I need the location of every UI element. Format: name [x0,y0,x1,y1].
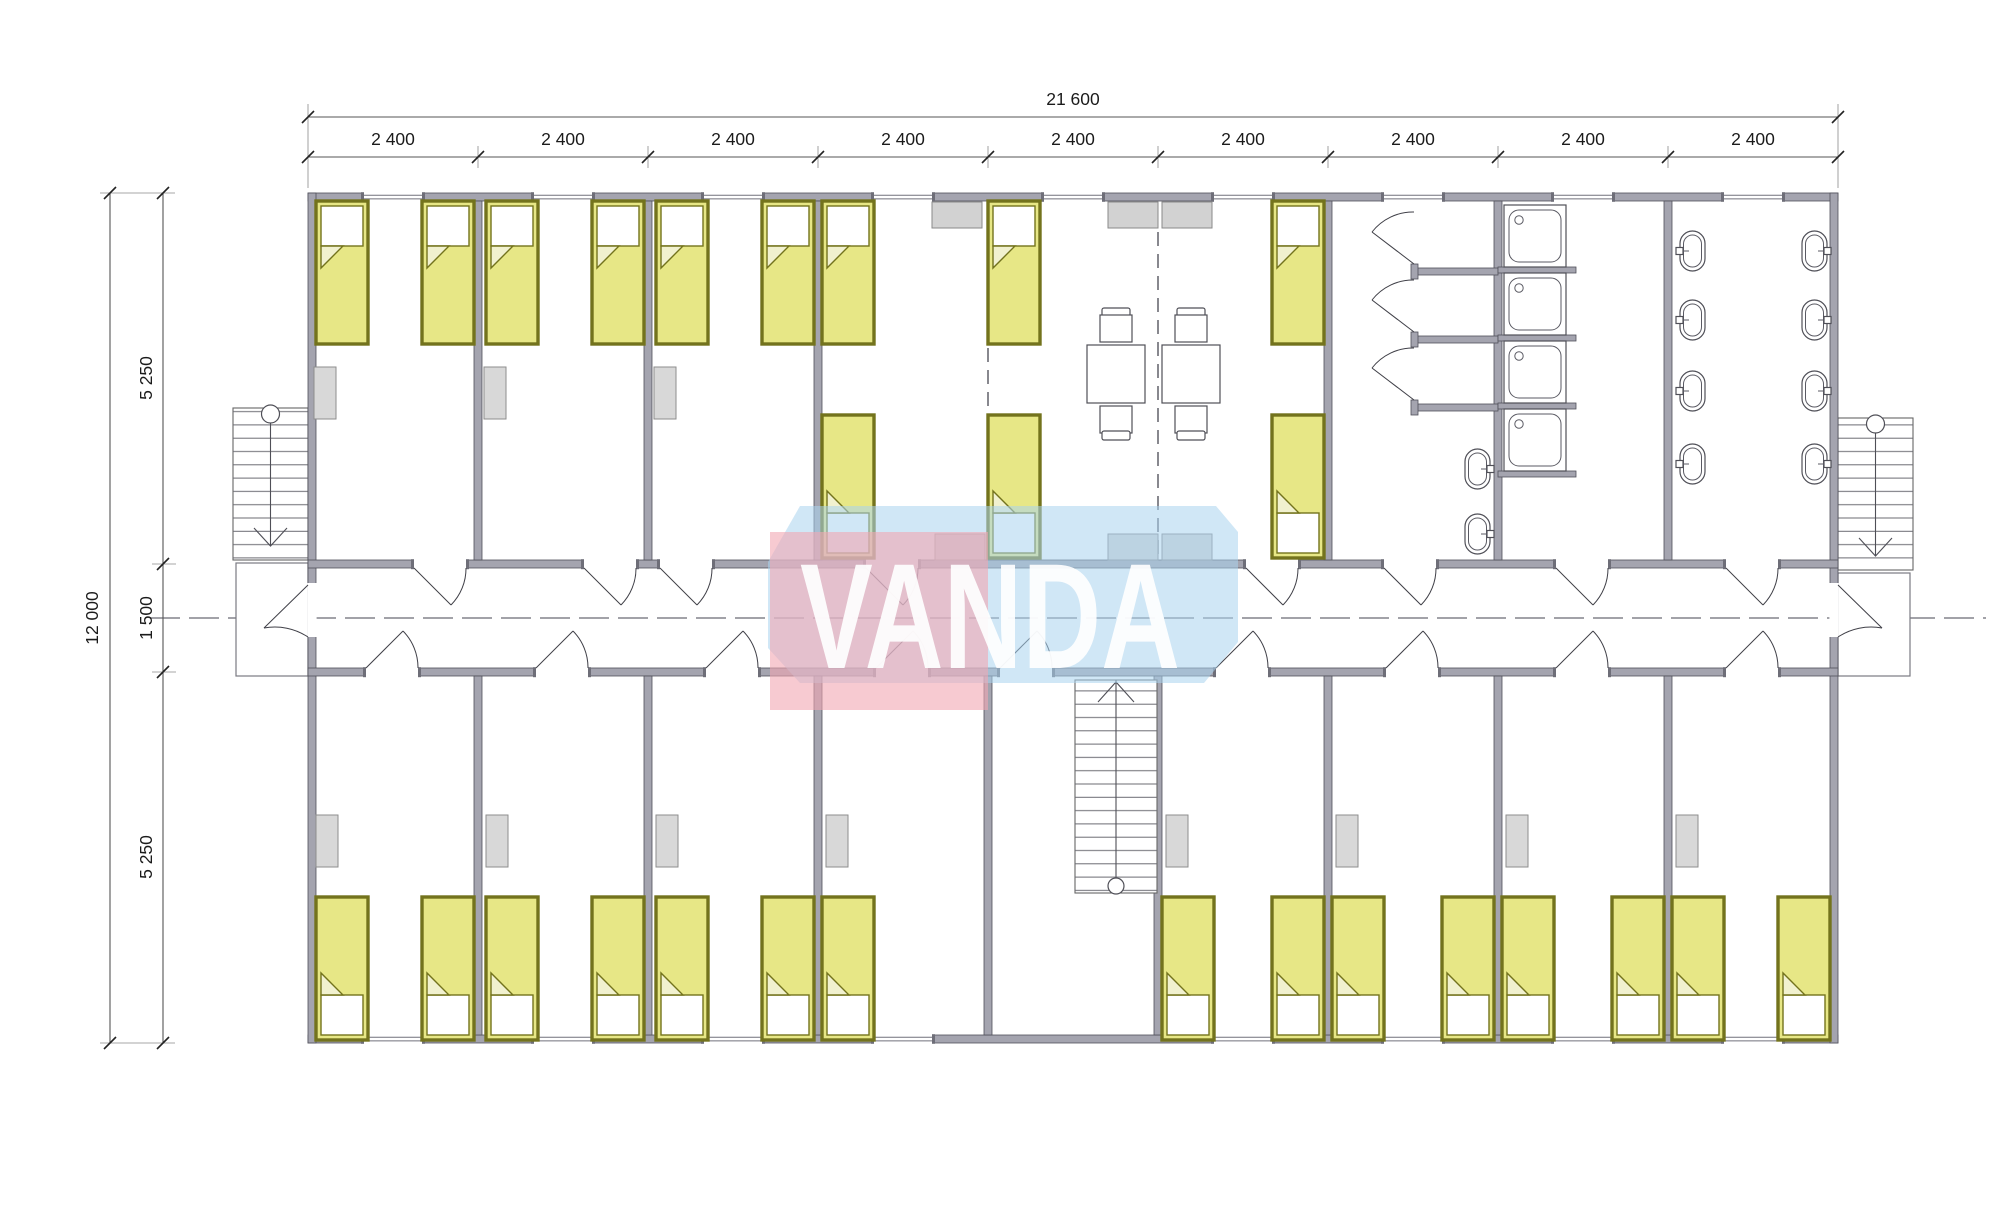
dim-bay: 2 400 [711,129,755,149]
dining-table [1162,345,1220,403]
dim-zone: 1 500 [136,596,156,640]
dining-area [1087,308,1220,440]
bed [316,201,368,344]
wc-stall-doors [1372,212,1414,400]
dim-bay: 2 400 [371,129,415,149]
dim-bay: 2 400 [1731,129,1775,149]
dim-zone: 5 250 [136,835,156,879]
dim-bay: 2 400 [1561,129,1605,149]
bed [762,897,814,1040]
right-entry-landing [1838,573,1910,676]
left-exterior-stair [233,405,308,676]
dim-total-width: 21 600 [1046,89,1100,109]
dim-bay: 2 400 [1391,129,1435,149]
bed [1778,897,1830,1040]
dimension-top: 21 600 2 400 2 400 2 400 2 400 2 400 2 4… [302,89,1844,188]
bed [1332,897,1384,1040]
bed [822,201,874,344]
dim-bay: 2 400 [881,129,925,149]
bed [422,201,474,344]
dim-bay: 2 400 [1051,129,1095,149]
bed [486,897,538,1040]
bed [422,897,474,1040]
bed [592,201,644,344]
watermark: VANDA [768,506,1238,710]
bed [1612,897,1664,1040]
bed [486,201,538,344]
bed [316,897,368,1040]
dim-bay: 2 400 [541,129,585,149]
bed [1272,201,1324,344]
right-exterior-stair [1838,415,1913,676]
bed [1672,897,1724,1040]
bed [762,201,814,344]
bed [988,201,1040,344]
floor-plan-page: VANDA 21 600 2 400 2 400 2 400 2 400 2 4… [0,0,2000,1219]
bed [656,201,708,344]
floor-plan-drawing: VANDA 21 600 2 400 2 400 2 400 2 400 2 4… [0,0,2000,1219]
dining-table [1087,345,1145,403]
bed [1272,415,1324,558]
dim-bay: 2 400 [1221,129,1265,149]
bed [1272,897,1324,1040]
bed [1502,897,1554,1040]
bed [1162,897,1214,1040]
bed [822,897,874,1040]
bed [656,897,708,1040]
dim-total-height: 12 000 [82,591,102,645]
central-staircase [1075,680,1157,894]
dim-zone: 5 250 [136,356,156,400]
bed [1442,897,1494,1040]
watermark-text: VANDA [800,532,1180,700]
bed [592,897,644,1040]
